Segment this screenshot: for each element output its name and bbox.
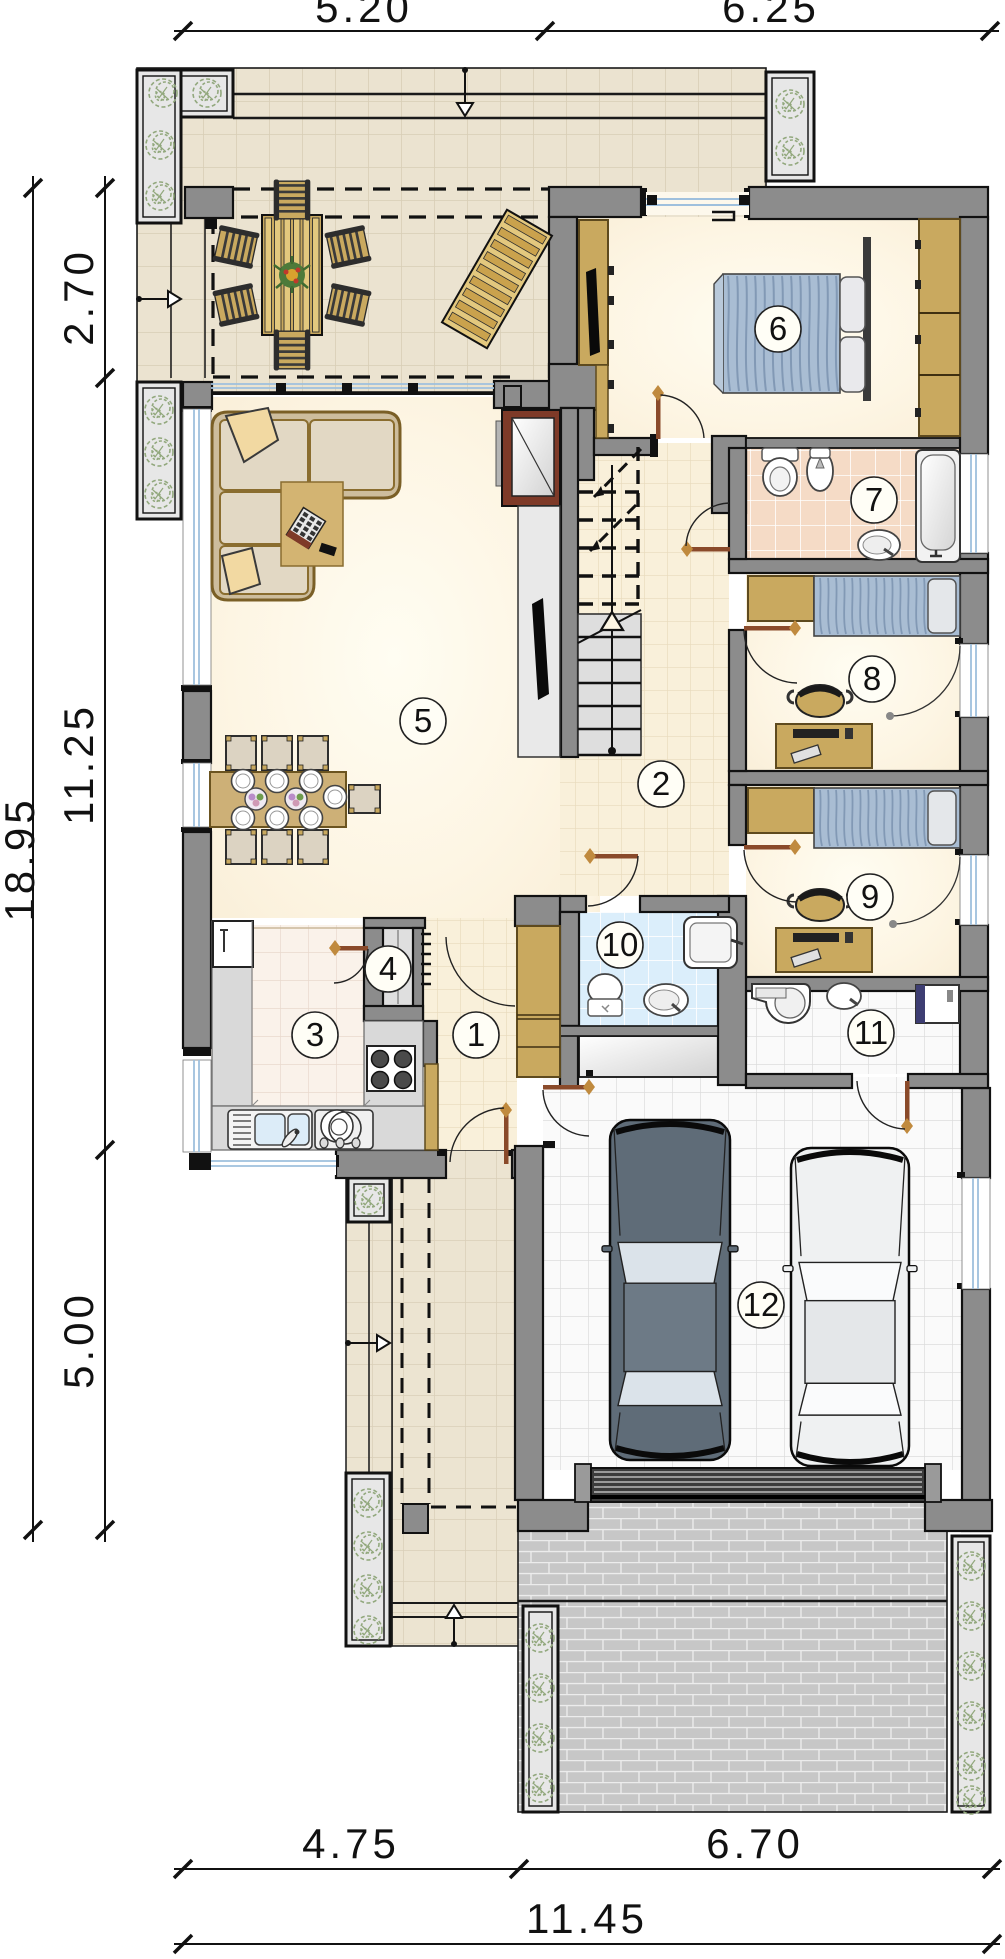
svg-text:12: 12 bbox=[743, 1286, 780, 1323]
svg-text:1: 1 bbox=[467, 1016, 485, 1053]
svg-text:2.70: 2.70 bbox=[55, 248, 102, 346]
svg-text:8: 8 bbox=[863, 660, 881, 697]
svg-text:5: 5 bbox=[414, 702, 432, 739]
svg-text:7: 7 bbox=[865, 481, 883, 518]
svg-text:6.70: 6.70 bbox=[706, 1820, 804, 1867]
svg-text:4: 4 bbox=[379, 950, 397, 987]
svg-text:18.95: 18.95 bbox=[0, 796, 43, 921]
svg-text:11: 11 bbox=[854, 1014, 888, 1051]
svg-text:11.45: 11.45 bbox=[526, 1895, 648, 1942]
svg-text:11.25: 11.25 bbox=[55, 703, 102, 825]
svg-text:6: 6 bbox=[769, 310, 787, 347]
svg-text:5.00: 5.00 bbox=[55, 1291, 102, 1389]
svg-text:2: 2 bbox=[652, 765, 670, 802]
svg-text:4.75: 4.75 bbox=[302, 1820, 400, 1867]
svg-text:9: 9 bbox=[861, 878, 879, 915]
svg-text:3: 3 bbox=[306, 1016, 324, 1053]
svg-text:10: 10 bbox=[602, 926, 639, 963]
svg-text:6.25: 6.25 bbox=[722, 0, 820, 31]
svg-text:5.20: 5.20 bbox=[315, 0, 413, 31]
